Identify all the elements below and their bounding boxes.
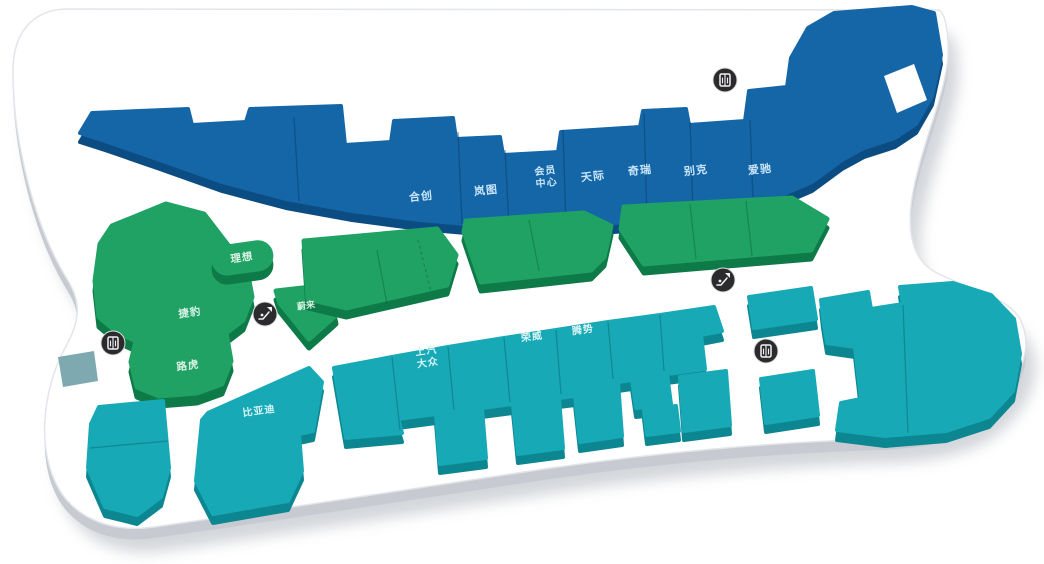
teal-block-p3-roof xyxy=(644,406,679,435)
store-label-hechuang: 合创 xyxy=(408,188,433,204)
store-label-buick: 别克 xyxy=(682,162,708,179)
escalator-icon xyxy=(711,268,735,292)
store-label-member-center: 会员中心 xyxy=(534,163,558,190)
teal-block-p2-roof xyxy=(680,371,730,431)
teal-block-r1-roof xyxy=(749,288,816,328)
elevator-icon xyxy=(101,331,125,355)
elevator-icon xyxy=(754,339,778,363)
mall-floor-map: 合创 岚图 会员中心 天际 奇瑞 别克 爱驰 理想 蔚来 捷豹 路虎 xyxy=(0,0,1044,564)
teal-corner-roof xyxy=(88,401,169,515)
store-label-aiways: 爱驰 xyxy=(747,161,772,177)
store-label-saic-vw: 上汽大众 xyxy=(414,343,439,371)
store-label-enovate: 天际 xyxy=(580,168,605,184)
green-block-b-roof xyxy=(464,213,611,282)
escalator-icon xyxy=(253,302,277,326)
store-label-voyah: 岚图 xyxy=(473,182,498,198)
teal-wedge xyxy=(58,351,98,387)
elevator-icon xyxy=(713,68,737,92)
store-label-chery: 奇瑞 xyxy=(627,162,652,178)
teal-block-r2-roof xyxy=(761,371,818,423)
